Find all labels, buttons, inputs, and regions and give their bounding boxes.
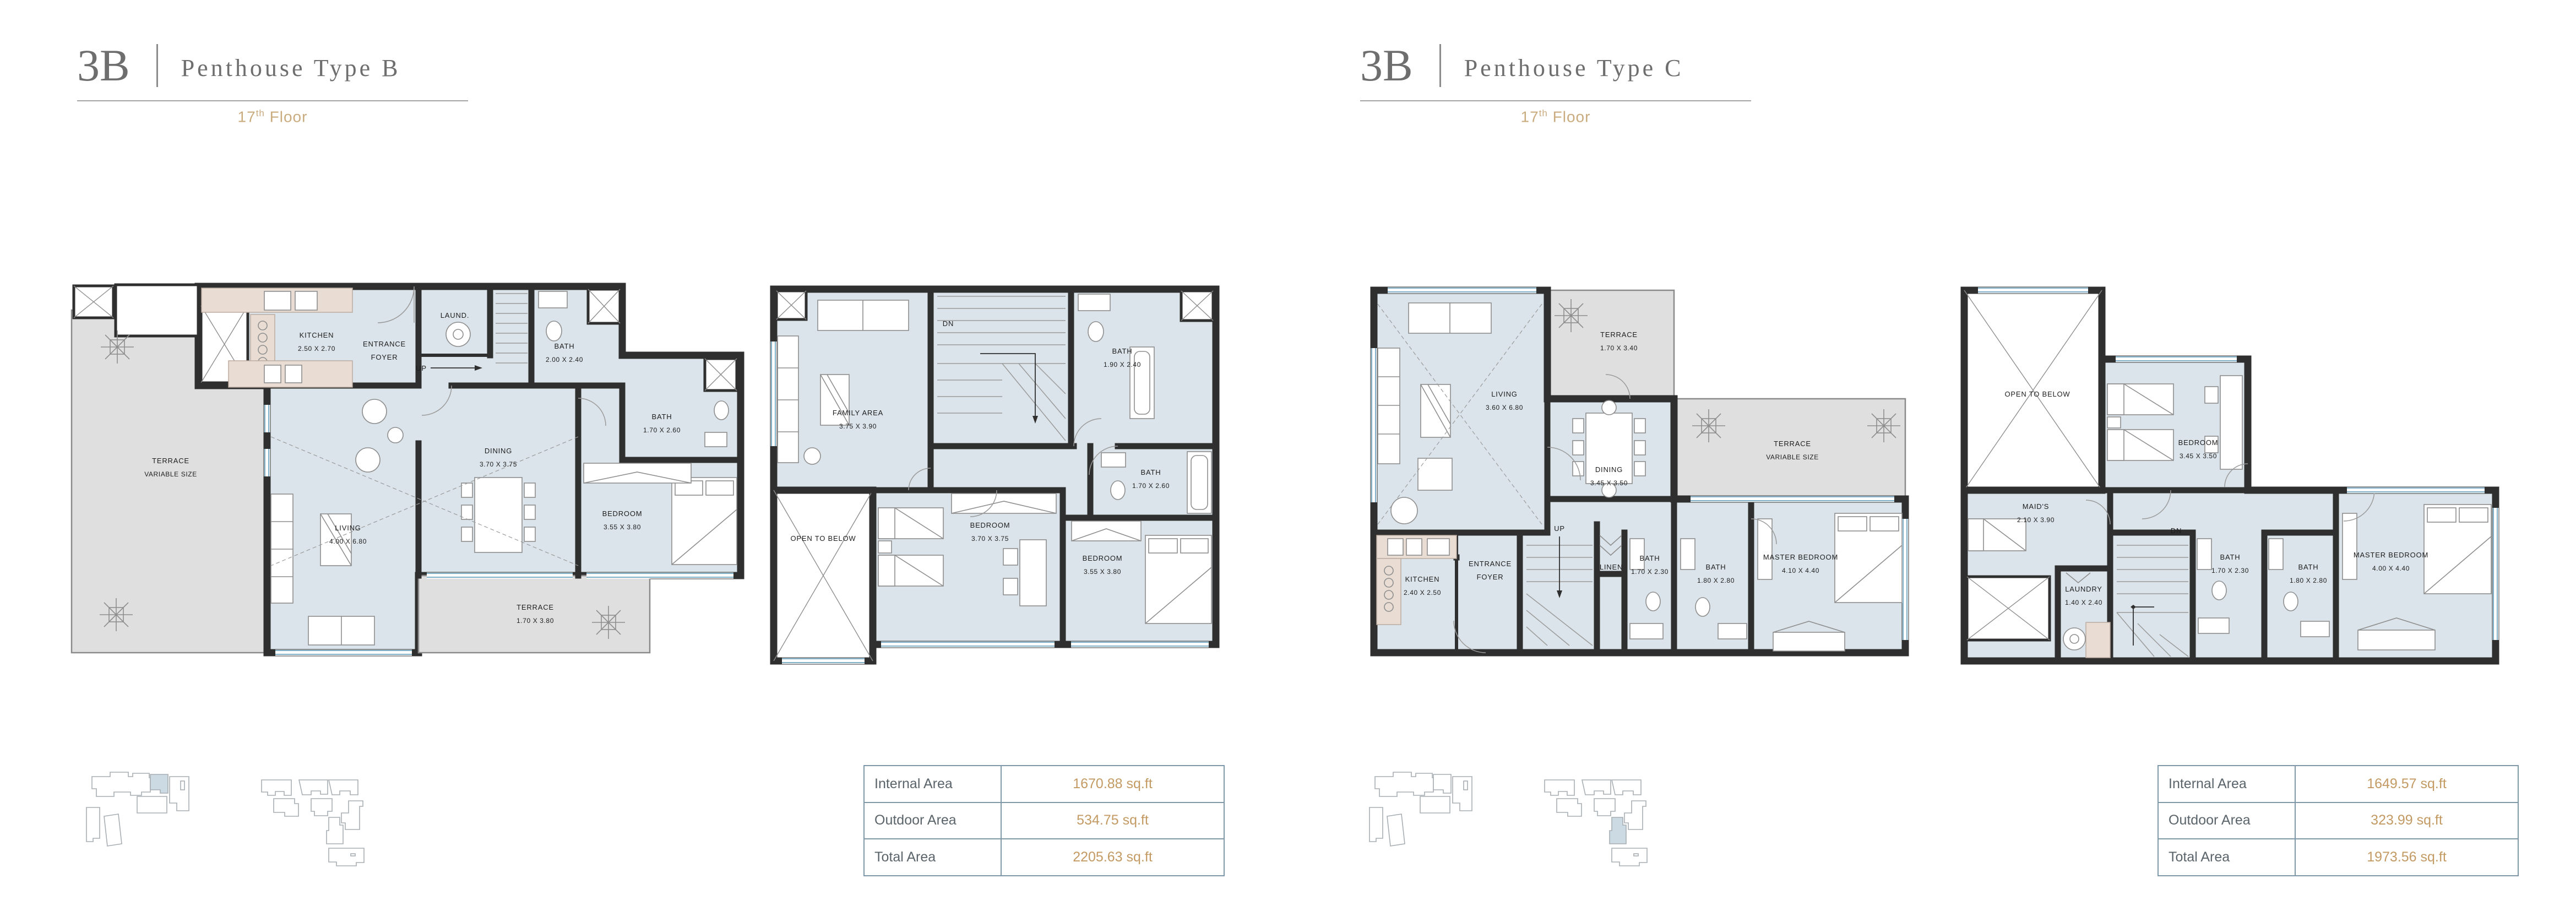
floor-ordinal: th — [1539, 108, 1548, 118]
room-label: FOYER — [371, 353, 398, 361]
area-row-label: Total Area — [864, 839, 1001, 876]
floor-plan-c-lower: LIVING 3.60 X 6.80 TERRACE 1.70 X 3.40 D… — [1366, 282, 1914, 661]
room-dims: 2.50 X 2.70 — [298, 345, 335, 353]
area-row-value: 2205.63 sq.ft — [1001, 839, 1224, 876]
toilet-icon — [546, 321, 562, 341]
desk — [1020, 540, 1046, 606]
service-room — [116, 285, 198, 336]
brochure-page: 3B Penthouse Type B 17th Floor — [0, 0, 2576, 911]
sink-icon — [1630, 623, 1663, 639]
table-row: Total Area 2205.63 sq.ft — [864, 839, 1224, 876]
bathtub-icon — [2269, 539, 2283, 570]
highlighted-unit — [1610, 817, 1626, 844]
floor-word: Floor — [270, 108, 308, 125]
room-dims: 3.45 X 3.50 — [1590, 479, 1628, 487]
room-dims: 1.70 X 3.40 — [1600, 344, 1638, 352]
room-dims: 3.70 X 3.75 — [971, 535, 1009, 543]
armchair — [362, 399, 387, 424]
toilet-icon — [2212, 581, 2226, 600]
room-label: BATH — [1141, 468, 1161, 476]
dresser — [2358, 630, 2435, 650]
room-dims: 1.70 X 2.60 — [1132, 482, 1170, 490]
area-row-label: Total Area — [2158, 839, 2295, 876]
area-row-value: 1670.88 sq.ft — [1001, 766, 1224, 802]
floor-number: 17 — [238, 108, 256, 125]
room-label: LIVING — [1491, 390, 1517, 398]
sink-icon — [1078, 294, 1110, 311]
key-plan-c — [1363, 760, 1704, 898]
unit-c-floor: 17th Floor — [1360, 108, 1751, 126]
room-dims: 1.70 X 2.60 — [643, 426, 681, 434]
bathtub-icon — [2197, 539, 2211, 570]
dining-table — [461, 478, 535, 552]
table-row: Outdoor Area 534.75 sq.ft — [864, 802, 1224, 839]
room-label: OPEN TO BELOW — [790, 534, 856, 543]
kitchen-stove — [1377, 558, 1401, 625]
table-row: Outdoor Area 323.99 sq.ft — [2158, 802, 2518, 839]
plant-icon — [592, 606, 625, 639]
plant-icon — [1867, 409, 1900, 442]
room-dims: 1.70 X 2.30 — [2211, 567, 2249, 574]
highlighted-unit — [150, 774, 168, 793]
room-label: BATH — [652, 413, 672, 421]
site-buildings — [1369, 772, 1647, 866]
side-table — [388, 427, 403, 443]
bathtub-icon — [1130, 347, 1154, 419]
wardrobe — [1758, 519, 1772, 579]
sink-icon — [2301, 621, 2329, 637]
sink-icon — [1101, 453, 1126, 467]
room-label: DINING — [1595, 465, 1623, 474]
title-divider — [156, 44, 158, 87]
room-label: LIVING — [335, 524, 361, 532]
floor-plan-b-lower: KITCHEN 2.50 X 2.70 ENTRANCE FOYER LAUND… — [66, 278, 743, 661]
room-dims: 3.75 X 3.90 — [839, 422, 877, 430]
room-label: LAUNDRY — [2065, 585, 2102, 593]
title-rule — [1360, 100, 1751, 101]
room-label: BATH — [2298, 563, 2319, 571]
room-label: BATH — [555, 342, 575, 350]
floor-plan-b-upper: FAMILY AREA 3.75 X 3.90 DN BATH 1.90 X 2… — [765, 281, 1222, 664]
bed — [672, 478, 737, 565]
sink-icon — [2198, 618, 2229, 633]
room-label: KITCHEN — [1405, 575, 1440, 583]
area-row-value: 1649.57 sq.ft — [2295, 766, 2518, 802]
area-table-b: Internal Area 1670.88 sq.ft Outdoor Area… — [863, 765, 1225, 876]
toilet-icon — [714, 401, 729, 420]
room-label: LAUND. — [441, 311, 469, 319]
laundry-counter — [2086, 622, 2110, 658]
room-label: BEDROOM — [2178, 438, 2219, 447]
area-row-label: Internal Area — [864, 766, 1001, 802]
room-dims: 3.55 X 3.80 — [604, 523, 641, 531]
unit-b-code: 3B — [77, 43, 130, 88]
room-dims: VARIABLE SIZE — [144, 470, 197, 478]
area-row-value: 323.99 sq.ft — [2295, 802, 2518, 839]
title-divider — [1439, 44, 1441, 87]
room-label: DINING — [485, 447, 512, 455]
room-dims: 2.40 X 2.50 — [1404, 589, 1441, 597]
area-row-label: Internal Area — [2158, 766, 2295, 802]
room-label: UP — [416, 364, 427, 372]
room-label: BATH — [1640, 554, 1660, 562]
room-label: KITCHEN — [300, 331, 334, 339]
plant-icon — [101, 330, 134, 364]
plant-icon — [1555, 299, 1588, 332]
unit-c-titleblock: 3B Penthouse Type C 17th Floor — [1360, 43, 1751, 126]
toilet-icon — [1646, 592, 1660, 611]
room-dims: 1.90 X 2.40 — [1104, 361, 1141, 368]
table-row: Internal Area 1670.88 sq.ft — [864, 766, 1224, 802]
floor-ordinal: th — [256, 108, 265, 118]
bed — [1145, 535, 1211, 623]
unit-c-title: Penthouse Type C — [1464, 51, 1684, 80]
room-label: BATH — [1112, 347, 1133, 355]
room-dims: 3.60 X 6.80 — [1486, 404, 1523, 411]
room-label: BATH — [2220, 553, 2241, 561]
room-dims: 3.45 X 3.50 — [2180, 452, 2217, 460]
room-label: UP — [1554, 524, 1565, 533]
room-label: MAID'S — [2023, 502, 2049, 511]
room-dims: 1.70 X 2.30 — [1631, 568, 1669, 576]
sink-icon — [539, 291, 567, 308]
wardrobe — [1072, 521, 1141, 541]
room-dims: 4.00 X 4.40 — [2372, 565, 2410, 572]
washer-icon — [2063, 628, 2085, 650]
room-label: BATH — [1706, 563, 1726, 571]
room-label: TERRACE — [517, 603, 554, 611]
floor-number: 17 — [1521, 108, 1539, 125]
floor-plan-c-upper: OPEN TO BELOW BEDROOM 3.45 X 3.50 MAID'S… — [1956, 282, 2504, 661]
room-dims: 3.55 X 3.80 — [1084, 568, 1121, 576]
room-label: BEDROOM — [1083, 554, 1123, 562]
room-dims: 2.00 X 2.40 — [546, 356, 583, 364]
room-label: FOYER — [1477, 573, 1504, 581]
sink-icon — [705, 432, 727, 447]
room-label: OPEN TO BELOW — [2004, 390, 2070, 398]
bathtub-icon — [1681, 539, 1695, 570]
unit-b-titleblock: 3B Penthouse Type B 17th Floor — [77, 43, 468, 126]
area-row-value: 534.75 sq.ft — [1001, 802, 1224, 839]
room-label: DN — [943, 319, 954, 328]
room-dims: 4.10 X 4.40 — [1782, 567, 1819, 574]
room-label: MASTER BEDROOM — [2354, 551, 2428, 559]
area-row-label: Outdoor Area — [2158, 802, 2295, 839]
wardrobe — [2343, 513, 2357, 579]
toilet-icon — [1111, 481, 1125, 500]
washer-icon — [446, 322, 470, 346]
room-label: TERRACE — [152, 457, 189, 465]
room-label: ENTRANCE — [1469, 560, 1512, 568]
bed — [2424, 505, 2491, 594]
plant-icon — [100, 598, 133, 631]
area-row-label: Outdoor Area — [864, 802, 1001, 839]
unit-b-title: Penthouse Type B — [181, 51, 401, 80]
plant-icon — [1692, 409, 1725, 442]
terrace-small — [419, 576, 650, 653]
room-dims: 1.80 X 2.80 — [2290, 577, 2327, 584]
unit-b-floor: 17th Floor — [77, 108, 468, 126]
room-dims: VARIABLE SIZE — [1766, 453, 1819, 461]
sink-icon — [1718, 623, 1747, 639]
key-plan-b — [80, 760, 421, 898]
unit-c-code: 3B — [1360, 43, 1413, 88]
title-rule — [77, 100, 468, 101]
toilet-icon — [2284, 592, 2298, 611]
wardrobe — [952, 494, 1056, 513]
room-label: LINEN — [1600, 563, 1623, 571]
toilet-icon — [1695, 598, 1710, 616]
armchair — [356, 448, 380, 472]
room-label: BEDROOM — [970, 521, 1010, 529]
dresser — [1773, 632, 1845, 651]
area-table-c: Internal Area 1649.57 sq.ft Outdoor Area… — [2157, 765, 2519, 876]
floor-word: Floor — [1553, 108, 1591, 125]
room-dims: 1.70 X 3.80 — [517, 617, 554, 625]
room-label: TERRACE — [1774, 440, 1811, 448]
side-table — [804, 448, 820, 464]
room-label: TERRACE — [1600, 330, 1638, 339]
bed — [1835, 513, 1902, 603]
room-label: FAMILY AREA — [833, 409, 883, 417]
room-label: ENTRANCE — [363, 340, 406, 348]
area-row-value: 1973.56 sq.ft — [2295, 839, 2518, 876]
room-dims: 3.70 X 3.75 — [480, 460, 517, 468]
room-label: MASTER BEDROOM — [1763, 553, 1838, 561]
room-label: DN — [2171, 527, 2182, 535]
site-buildings — [86, 772, 364, 866]
room-dims: 1.40 X 2.40 — [2065, 599, 2102, 606]
room-dims: 1.80 X 2.80 — [1697, 577, 1735, 584]
room-dims: 4.00 X 6.80 — [329, 538, 367, 545]
toilet-icon — [1088, 322, 1104, 341]
desk — [2220, 376, 2242, 469]
room-dims: 2.10 X 3.90 — [2017, 516, 2055, 524]
table-row: Internal Area 1649.57 sq.ft — [2158, 766, 2518, 802]
table-row: Total Area 1973.56 sq.ft — [2158, 839, 2518, 876]
room-label: BEDROOM — [602, 509, 643, 518]
